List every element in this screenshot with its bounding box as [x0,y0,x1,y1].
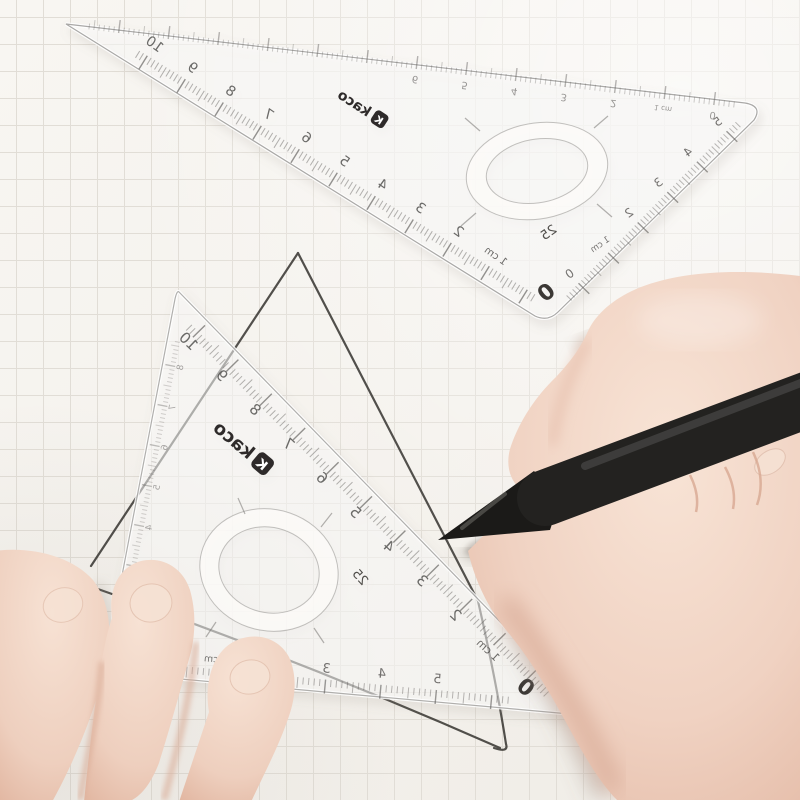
scale-number: 3 [322,661,332,677]
scale-number: 4 [510,85,518,97]
scale-number: 3 [560,91,568,103]
knuckle-highlight [638,294,762,346]
scale-number: 0 [709,109,717,121]
scale-number: 2 [610,97,618,109]
scale-number: 5 [433,672,443,688]
scale-number: 5 [461,79,469,91]
scale-number: 6 [411,73,419,85]
scale-number: 4 [377,666,387,682]
photo-scene: 25 0 K kaco 10987654321 cm 54321 cm0 01 … [0,0,800,800]
